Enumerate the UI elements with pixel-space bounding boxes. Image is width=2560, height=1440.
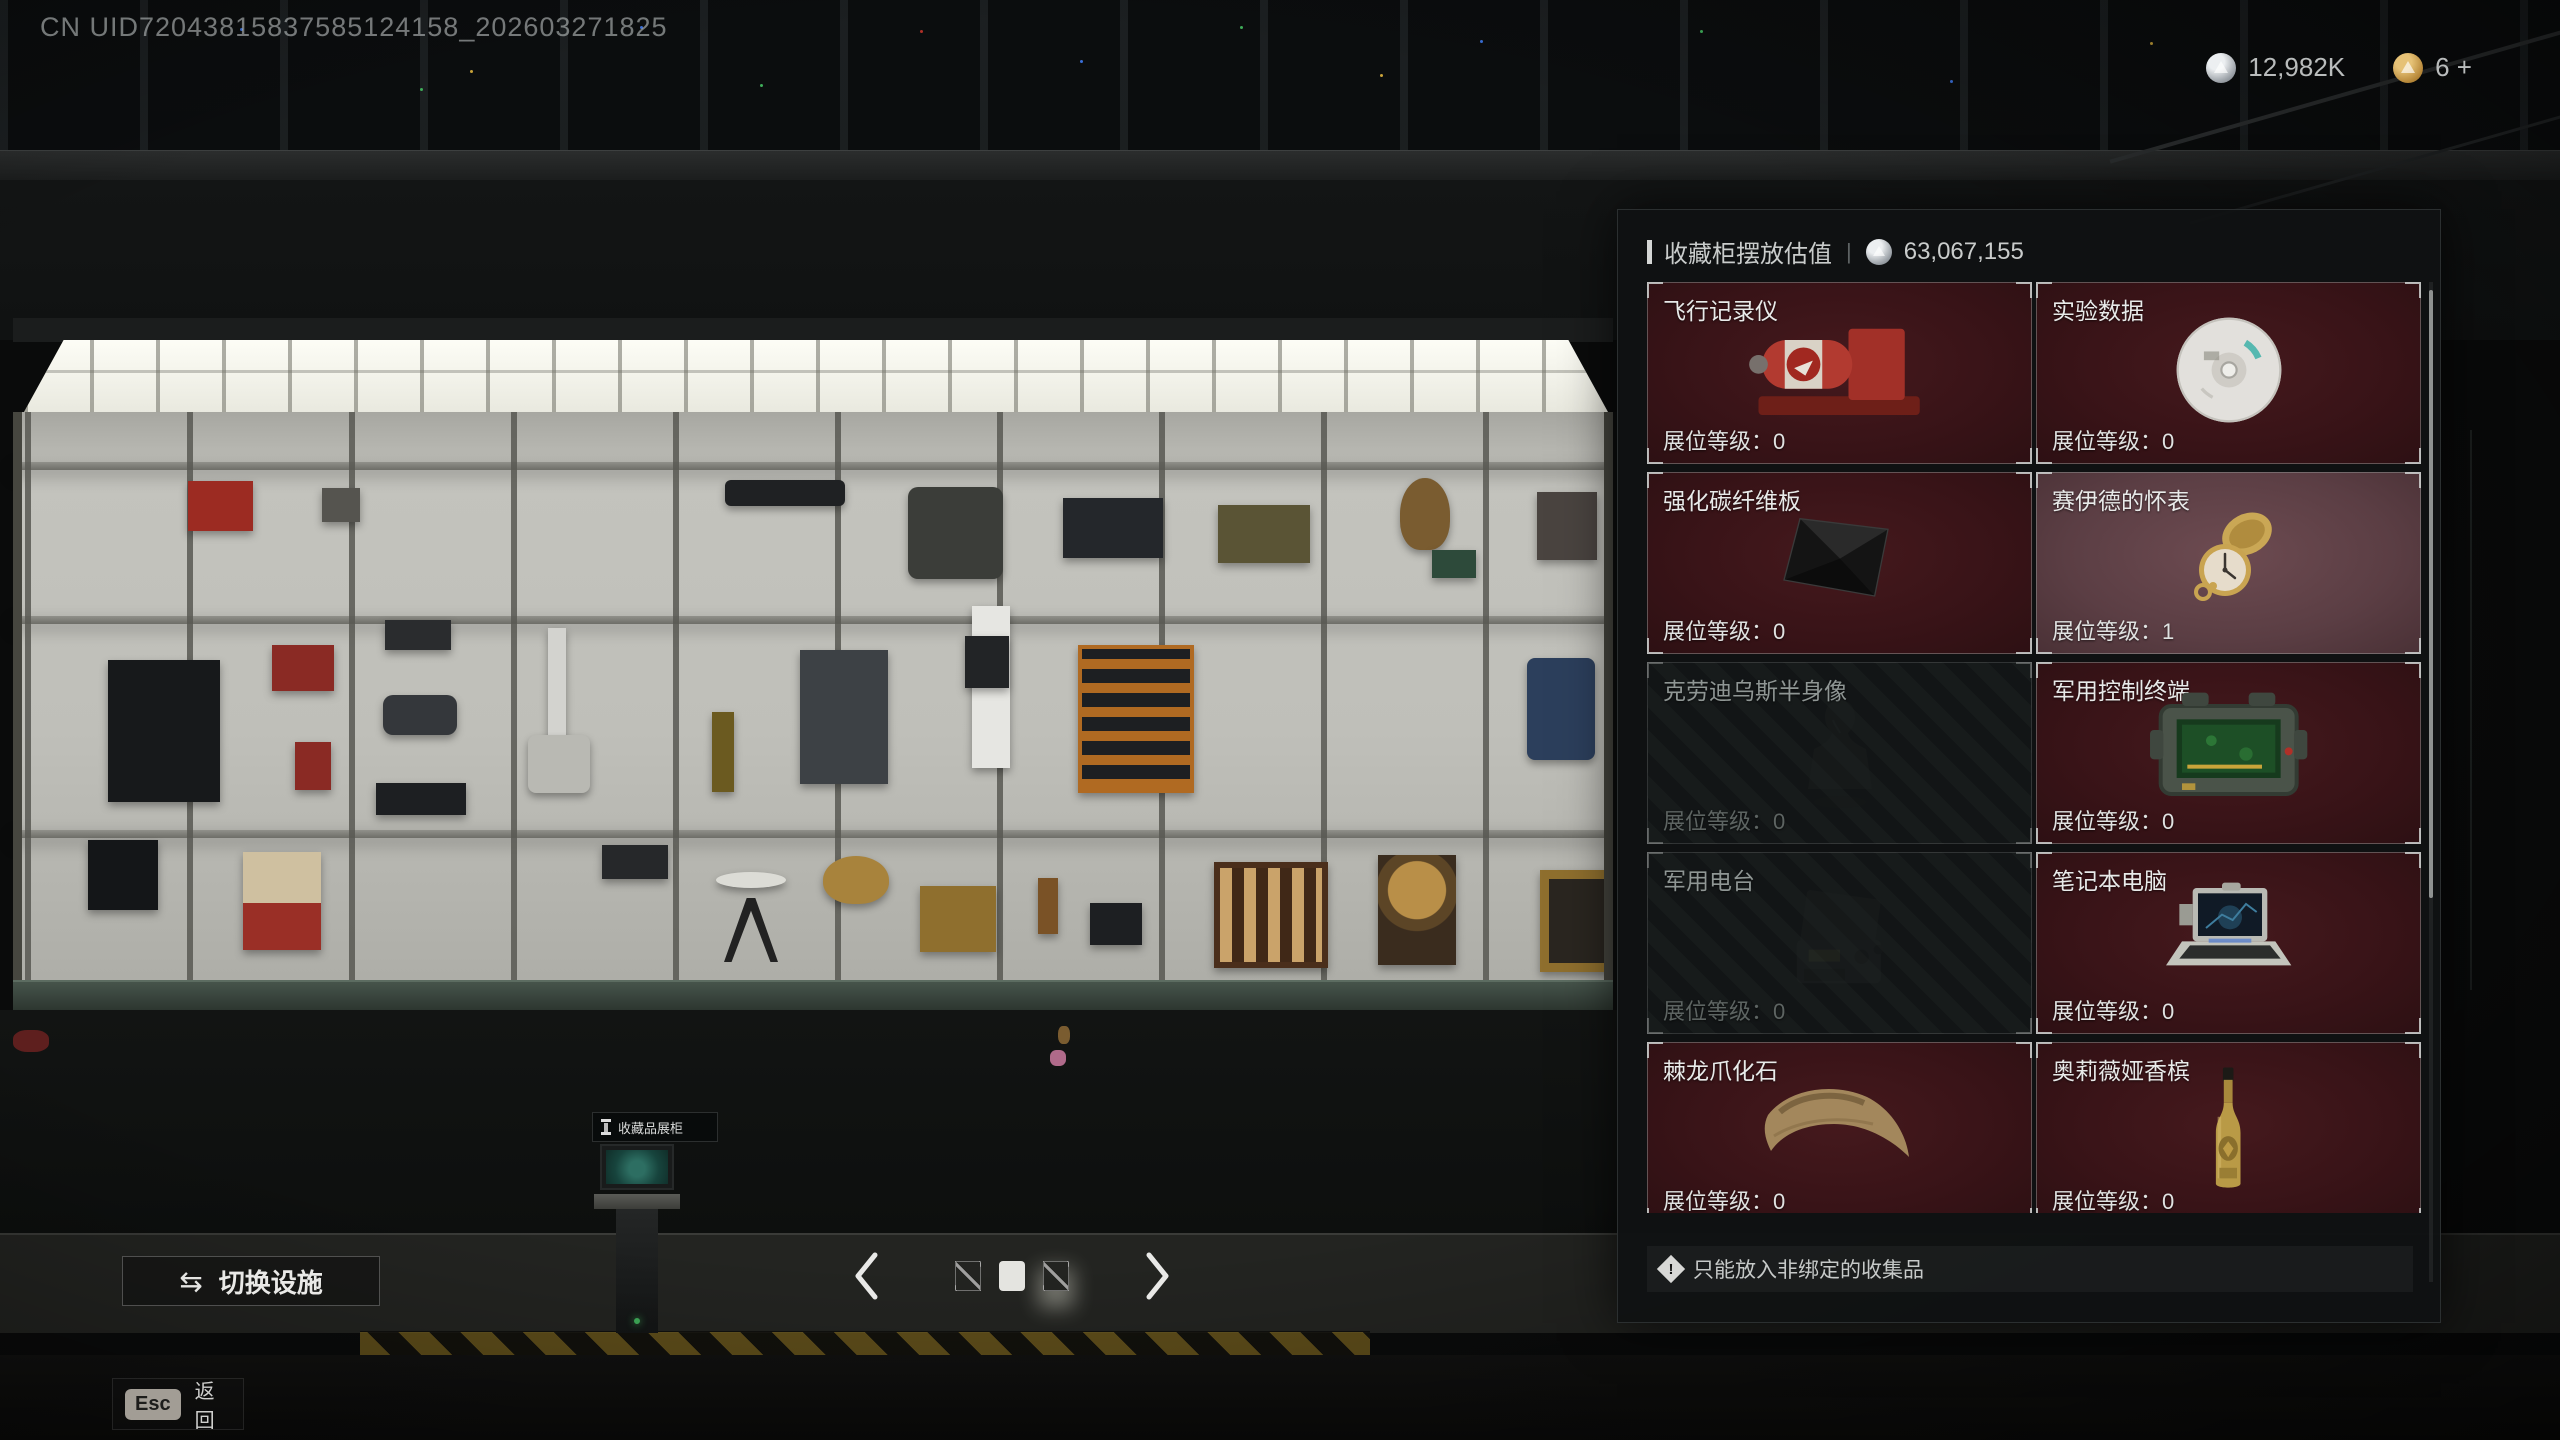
display-item-bottle <box>712 712 734 792</box>
claw-fossil-icon <box>1735 1070 1945 1190</box>
gold-amount: 6 + <box>2435 52 2472 83</box>
wall-frame <box>1604 412 1613 980</box>
display-item-small-bottle <box>1038 878 1058 934</box>
display-item-red-tester <box>272 645 334 691</box>
booth-level: 展位等级：0 <box>1663 994 1785 1026</box>
booth-level: 展位等级：0 <box>1663 614 1785 646</box>
value-coin-icon <box>1866 239 1892 265</box>
swap-arrows-icon: ⇆ <box>179 1265 202 1298</box>
display-item-white-dish <box>716 872 786 888</box>
ceiling-girder <box>0 150 2560 181</box>
display-item-small-box <box>322 488 360 522</box>
page-dots <box>955 1261 1069 1291</box>
game-screen: 收藏品展柜 CN UID72043815837585124158_2026032… <box>0 0 2560 1440</box>
display-item-vr-headset <box>383 695 457 735</box>
champagne-icon <box>2193 1064 2263 1196</box>
display-item-globe <box>1400 478 1450 550</box>
booth-level: 展位等级：0 <box>2052 804 2174 836</box>
booth-level: 展位等级：0 <box>2052 424 2174 456</box>
booth-level: 展位等级：1 <box>2052 614 2174 646</box>
collectible-card[interactable]: 克劳迪乌斯半身像 展位等级：0 <box>1647 662 2032 844</box>
display-item-camera <box>385 620 451 650</box>
spool-icon <box>601 1119 611 1135</box>
display-item-speaker <box>88 840 158 910</box>
display-item-robot-arm <box>800 650 888 784</box>
warning-diamond-icon: ! <box>1657 1255 1685 1283</box>
panel-header: 收藏柜摆放估值 | 63,067,155 <box>1647 234 2024 269</box>
display-item-drone <box>725 480 845 506</box>
collectible-art <box>1658 693 2021 807</box>
collectible-art <box>1658 883 2021 997</box>
collectible-art <box>2047 313 2410 427</box>
display-wall <box>13 412 1613 980</box>
display-item-dark-camera <box>1090 903 1142 945</box>
wall-frame <box>13 412 22 980</box>
collectible-art <box>2047 1073 2410 1187</box>
light-housing <box>13 318 1613 342</box>
collectible-art <box>1658 503 2021 617</box>
bust-icon <box>1785 690 1895 810</box>
total-value: 63,067,155 <box>1904 238 2024 266</box>
next-page-chevron-icon[interactable] <box>1144 1250 1172 1302</box>
display-item-battery-rack <box>1078 645 1194 793</box>
pocket-watch-icon <box>2169 500 2289 620</box>
collectible-art <box>2047 883 2410 997</box>
footer-note-text: 只能放入非绑定的收集品 <box>1693 1254 1924 1284</box>
terminal-screen <box>606 1150 668 1184</box>
collectible-art <box>2047 693 2410 807</box>
terminal-led <box>634 1318 640 1324</box>
display-item-dark-panel <box>965 636 1009 688</box>
uid-watermark: CN UID72043815837585124158_202603271825 <box>40 12 668 43</box>
collectible-art <box>2047 503 2410 617</box>
display-item-chessboard <box>1214 862 1328 968</box>
page-dot-1[interactable] <box>955 1261 981 1291</box>
lower-floor <box>0 1355 2560 1440</box>
display-item-gold-box <box>920 886 996 952</box>
booth-level: 展位等级：0 <box>1663 1184 1785 1213</box>
display-item-crate-olive <box>1218 505 1310 563</box>
collectible-art <box>1658 1073 2021 1187</box>
booth-level: 展位等级：0 <box>2052 1184 2174 1213</box>
military-radio-icon <box>1768 880 1912 1000</box>
cabinet-pager <box>852 1244 1172 1308</box>
collectible-art <box>1658 313 2021 427</box>
page-dot-3[interactable] <box>1043 1261 1069 1291</box>
under-counter-shadow <box>0 1010 1617 1233</box>
floor-flower <box>1050 1050 1066 1066</box>
collection-cabinet-panel: 收藏柜摆放估值 | 63,067,155 飞行记录仪 展位等级：0 实验数据 展… <box>1617 209 2441 1323</box>
silver-amount: 12,982K <box>2248 52 2345 83</box>
military-terminal-icon <box>2142 690 2315 810</box>
collectible-card[interactable]: 奥莉薇娅香槟 展位等级：0 <box>2036 1042 2421 1213</box>
booth-level: 展位等级：0 <box>1663 804 1785 836</box>
floor-cloth <box>13 1030 49 1052</box>
gold-coin-icon <box>2393 53 2423 83</box>
esc-key-badge: Esc <box>125 1389 181 1420</box>
switch-facility-label: 切换设施 <box>219 1263 323 1300</box>
display-item-black-cabinet <box>108 660 220 802</box>
currency-bar: 12,982K 6 + <box>2206 52 2472 83</box>
display-item-red-device <box>188 481 253 531</box>
display-item-camcorder <box>376 783 466 815</box>
collectible-card[interactable]: 笔记本电脑 展位等级：0 <box>2036 852 2421 1034</box>
silver-coin-icon <box>2206 53 2236 83</box>
panel-title: 收藏柜摆放估值 <box>1664 234 1832 269</box>
collectible-card[interactable]: 棘龙爪化石 展位等级：0 <box>1647 1042 2032 1213</box>
header-accent-bar <box>1647 240 1652 264</box>
collectible-card[interactable]: 飞行记录仪 展位等级：0 <box>1647 282 2032 464</box>
terminal-tooltip-label: 收藏品展柜 <box>618 1118 683 1137</box>
display-item-vacuum-body <box>528 735 590 793</box>
laptop-icon <box>2142 880 2315 1000</box>
header-separator: | <box>1846 239 1852 265</box>
silver-currency-chip: 12,982K <box>2206 52 2345 83</box>
collectible-card[interactable]: 强化碳纤维板 展位等级：0 <box>1647 472 2032 654</box>
display-item-blue-robot <box>1527 658 1595 760</box>
terminal-keyboard <box>594 1194 680 1209</box>
panel-scrollbar-thumb[interactable] <box>2429 290 2433 898</box>
terminal-tooltip: 收藏品展柜 <box>592 1112 718 1142</box>
collectible-card[interactable]: 实验数据 展位等级：0 <box>2036 282 2421 464</box>
collectible-card[interactable]: 赛伊德的怀表 展位等级：1 <box>2036 472 2421 654</box>
skylight-panel <box>24 340 1608 412</box>
carbon-plate-icon <box>1760 500 1920 620</box>
switch-facility-button[interactable]: ⇆ 切换设施 <box>122 1256 380 1306</box>
collectible-grid: 飞行记录仪 展位等级：0 实验数据 展位等级：0 强化碳纤维板 展位等级：0 赛… <box>1647 282 2425 1213</box>
data-disc-icon <box>2169 310 2289 430</box>
display-item-red-meter <box>295 742 331 790</box>
booth-level: 展位等级：0 <box>1663 424 1785 456</box>
floor-badge <box>1058 1026 1070 1044</box>
display-item-backpack <box>908 487 1003 579</box>
rack-led-lights <box>0 0 3 3</box>
terminal-stand <box>616 1209 658 1333</box>
display-item-green-monitor <box>1432 550 1476 578</box>
panel-footer-note: ! 只能放入非绑定的收集品 <box>1647 1246 2413 1292</box>
panel-scrollbar-track[interactable] <box>2429 282 2433 1282</box>
display-item-crate-dark <box>1063 498 1163 558</box>
collection-terminal[interactable] <box>600 1144 674 1190</box>
display-counter <box>13 980 1613 1012</box>
back-label: 返回 <box>195 1375 231 1433</box>
right-wall-edge <box>2470 430 2472 990</box>
booth-level: 展位等级：0 <box>2052 994 2174 1026</box>
hazard-stripe <box>360 1331 1370 1357</box>
display-item-mini-drone <box>602 845 668 879</box>
page-dot-2[interactable] <box>999 1261 1025 1291</box>
flight-recorder-icon <box>1736 310 1942 430</box>
esc-back-hint[interactable]: Esc 返回 <box>112 1378 244 1430</box>
display-item-gold-bowl <box>823 856 889 904</box>
display-item-vending-toy <box>243 852 321 950</box>
gold-currency-chip[interactable]: 6 + <box>2393 52 2472 83</box>
collectible-card[interactable]: 军用控制终端 展位等级：0 <box>2036 662 2421 844</box>
prev-page-chevron-icon[interactable] <box>852 1250 880 1302</box>
display-item-gramophone <box>1378 855 1456 965</box>
display-item-reel-recorder <box>1537 492 1597 560</box>
collectible-card[interactable]: 军用电台 展位等级：0 <box>1647 852 2032 1034</box>
